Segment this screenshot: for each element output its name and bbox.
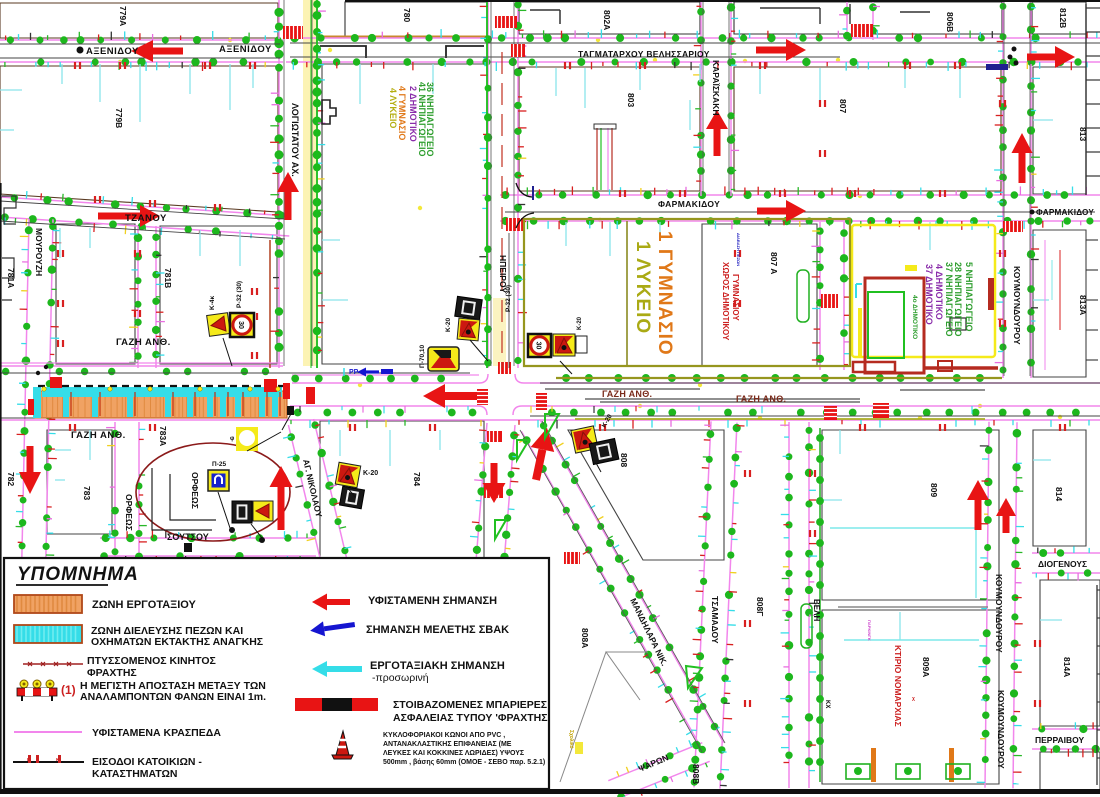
svg-text:5 ΝΗΠΙΑΓΩΓΕΙΟ: 5 ΝΗΠΙΑΓΩΓΕΙΟ [964,262,974,332]
svg-text:2 ΔΗΜΟΤΙΚΟ: 2 ΔΗΜΟΤΙΚΟ [408,86,418,142]
svg-text:ΚΤΙΡΙΟ ΝΟΜΑΡΧΙΑΣ: ΚΤΙΡΙΟ ΝΟΜΑΡΧΙΑΣ [893,645,903,727]
svg-text:ΒΕΛΗ: ΒΕΛΗ [812,599,821,621]
svg-text:ΤΖΑΝΟΥ: ΤΖΑΝΟΥ [125,213,167,224]
svg-text:ΥΦΙΣΤΑΜΕΝΗ ΣΗΜΑΝΣΗ: ΥΦΙΣΤΑΜΕΝΗ ΣΗΜΑΝΣΗ [368,595,497,607]
svg-text:812Β: 812Β [1058,8,1068,28]
svg-text:ΕΡΓΟΤΑΞΙΑΚΗ ΣΗΜΑΝΣΗ: ΕΡΓΟΤΑΞΙΑΚΗ ΣΗΜΑΝΣΗ [370,660,505,672]
svg-text:ΓΑΖΗ ΑΝΘ.: ΓΑΖΗ ΑΝΘ. [602,389,652,399]
svg-text:814: 814 [1054,487,1064,501]
svg-text:30: 30 [535,342,542,350]
svg-text:ΠΤΥΣΣΟΜΕΝΟΣ ΚΙΝΗΤΟΣ: ΠΤΥΣΣΟΜΕΝΟΣ ΚΙΝΗΤΟΣ [87,655,216,667]
svg-text:ΦΑΡΜΑΚΙΔΟΥ: ΦΑΡΜΑΚΙΔΟΥ [658,199,720,209]
svg-text:-προσωρινή: -προσωρινή [372,672,429,684]
svg-text:808Β: 808Β [691,764,701,784]
svg-text:783Α: 783Α [158,426,168,446]
svg-text:ΕΙΣΟΔΟΙ ΚΑΤΟΙΚΙΩΝ -: ΕΙΣΟΔΟΙ ΚΑΤΟΙΚΙΩΝ - [92,756,202,768]
svg-text:ΓΥΜΝΑΣΙΟΥ: ΓΥΜΝΑΣΙΟΥ [731,274,740,321]
svg-text:ΚΧ: ΚΧ [824,700,830,708]
svg-text:ΓΑΖΗ ΑΝΘ.: ΓΑΖΗ ΑΝΘ. [71,430,126,441]
svg-text:808Α: 808Α [580,628,590,648]
svg-text:χ: χ [912,696,915,702]
svg-text:ΚΥΚΛΟΦΟΡΙΑΚΟΙ ΚΩΝΟΙ ΑΠΟ PVC ,: ΚΥΚΛΟΦΟΡΙΑΚΟΙ ΚΩΝΟΙ ΑΠΟ PVC , [383,732,505,739]
svg-text:781Β: 781Β [163,268,173,288]
svg-text:ΥΦΙΣΤΑΜΕΝΑ ΚΡΑΣΠΕΔΑ: ΥΦΙΣΤΑΜΕΝΑ ΚΡΑΣΠΕΔΑ [92,727,221,739]
svg-text:ΟΧΗΜΑΤΩΝ ΕΚΤΑΚΤΗΣ ΑΝΑΓΚΗΣ: ΟΧΗΜΑΤΩΝ ΕΚΤΑΚΤΗΣ ΑΝΑΓΚΗΣ [91,636,263,648]
svg-text:806Β: 806Β [945,12,955,32]
svg-text:ΦΑΡΜΑΚΙΔΟΥ: ΦΑΡΜΑΚΙΔΟΥ [1036,208,1094,217]
svg-text:Π-25: Π-25 [212,461,226,468]
svg-text:779Α: 779Α [118,6,128,26]
svg-text:ΥΠΟΜΝΗΜΑ: ΥΠΟΜΝΗΜΑ [17,564,139,585]
svg-text:ΚΑΡΑΪΣΚΑΚΗ: ΚΑΡΑΪΣΚΑΚΗ [711,60,721,115]
svg-text:814Α: 814Α [1062,657,1072,677]
svg-text:Σχολικό: Σχολικό [568,730,574,749]
svg-text:30: 30 [237,321,244,329]
svg-text:ΟΡΦΕΩΣ: ΟΡΦΕΩΣ [190,472,200,509]
svg-text:Π-70,10: Π-70,10 [419,344,426,368]
svg-text:ΚΟΥΜΟΥΝΔΟΥΡΟΥ: ΚΟΥΜΟΥΝΔΟΥΡΟΥ [1012,266,1022,345]
svg-text:φ: φ [230,436,235,442]
svg-text:813: 813 [1078,127,1088,141]
svg-text:ΑΝΑΛΑΜΠΟΝΤΩΝ ΦΑΝΩΝ ΕΙΝΑΙ 1m.: ΑΝΑΛΑΜΠΟΝΤΩΝ ΦΑΝΩΝ ΕΙΝΑΙ 1m. [80,691,266,703]
svg-text:37 ΔΗΜΟΤΙΚΟ: 37 ΔΗΜΟΤΙΚΟ [924,264,934,325]
svg-text:37 ΝΗΠΙΑΓΩΓΕΙΟ: 37 ΝΗΠΙΑΓΩΓΕΙΟ [944,262,954,337]
svg-text:Ρ-32 (30): Ρ-32 (30) [236,281,243,308]
svg-text:781Α: 781Α [6,268,16,288]
svg-text:ΑΞΕΝΙΔΟΥ: ΑΞΕΝΙΔΟΥ [86,46,139,57]
svg-text:803: 803 [626,93,636,107]
svg-text:809: 809 [929,483,939,497]
svg-text:ΔΙΟΓΕΝΟΥΣ: ΔΙΟΓΕΝΟΥΣ [1038,559,1087,569]
svg-text:807 Α: 807 Α [769,252,779,274]
svg-text:ΔΙΑΒΑΣΗ ΠΕΖΩΝ: ΔΙΑΒΑΣΗ ΠΕΖΩΝ [736,233,741,266]
svg-text:Κ-20: Κ-20 [445,318,452,332]
svg-text:ΠΑΡΚΙΝΓΚ: ΠΑΡΚΙΝΓΚ [867,620,872,641]
svg-text:ΚΟΥΜΟΥΝΔΟΥΡΟΥ: ΚΟΥΜΟΥΝΔΟΥΡΟΥ [996,690,1006,769]
svg-text:ΠΕΡΡΑΙΒΟΥ: ΠΕΡΡΑΙΒΟΥ [1035,735,1085,745]
svg-text:4ο ΔΗΜΟΤΙΚΟ: 4ο ΔΗΜΟΤΙΚΟ [911,295,918,339]
svg-text:Κ-4κ: Κ-4κ [209,296,216,310]
svg-text:ΛΟΓΙΩΤΑΤΟΥ ΑΧ.: ΛΟΓΙΩΤΑΤΟΥ ΑΧ. [290,103,300,177]
svg-text:ΖΩΝΗ ΕΡΓΟΤΑΞΙΟΥ: ΖΩΝΗ ΕΡΓΟΤΑΞΙΟΥ [92,599,197,611]
svg-text:ΗΠΕΙΡΟΥ: ΗΠΕΙΡΟΥ [498,255,508,293]
svg-text:1 ΛΥΚΕΙΟ: 1 ΛΥΚΕΙΟ [632,241,653,334]
svg-text:4 ΛΥΚΕΙΟ: 4 ΛΥΚΕΙΟ [388,88,398,128]
svg-text:ΣΗΜΑΝΣΗ ΜΕΛΕΤΗΣ ΣΒΑΚ: ΣΗΜΑΝΣΗ ΜΕΛΕΤΗΣ ΣΒΑΚ [366,624,509,636]
svg-text:ΣΤΟΙΒΑΖΟΜΕΝΕΣ ΜΠΑΡΙΕΡΕΣ: ΣΤΟΙΒΑΖΟΜΕΝΕΣ ΜΠΑΡΙΕΡΕΣ [393,699,547,711]
svg-text:ΟΡΦΕΩΣ: ΟΡΦΕΩΣ [124,494,134,531]
svg-text:500mm , βάσης 60mm (ΟΜΟΕ - ΣΕΒ: 500mm , βάσης 60mm (ΟΜΟΕ - ΣΕΒΟ παρ. 5.2… [383,759,545,766]
svg-text:ΑΞΕΝΙΔΟΥ: ΑΞΕΝΙΔΟΥ [219,44,272,55]
svg-text:ΛΕΥΚΕΣ ΚΑΙ ΚΟΚΚΙΝΕΣ ΛΩΡΙΔΕΣ) Υ: ΛΕΥΚΕΣ ΚΑΙ ΚΟΚΚΙΝΕΣ ΛΩΡΙΔΕΣ) ΥΨΟΥΣ [383,750,524,757]
svg-text:ΜΟΥΡΟΥΖΗ: ΜΟΥΡΟΥΖΗ [34,228,44,276]
svg-text:ΦΡΑΧΤΗΣ: ΦΡΑΧΤΗΣ [87,667,137,679]
svg-text:ΑΣΦΑΛΕΙΑΣ ΤΥΠΟΥ 'ΦΡΑΧΤΗΣ': ΑΣΦΑΛΕΙΑΣ ΤΥΠΟΥ 'ΦΡΑΧΤΗΣ' [393,712,550,724]
svg-text:κ: κ [56,757,59,763]
svg-text:813Α: 813Α [1078,295,1088,315]
svg-text:808Γ: 808Γ [755,597,765,616]
svg-text:809Α: 809Α [921,657,931,677]
svg-text:780: 780 [402,8,412,22]
svg-text:808: 808 [619,453,629,467]
svg-text:ΧΩΡΟΣ ΔΗΜΟΤΙΚΟΥ: ΧΩΡΟΣ ΔΗΜΟΤΙΚΟΥ [721,262,730,341]
svg-text:ΡΡ: ΡΡ [349,369,359,376]
svg-text:784: 784 [412,472,422,486]
svg-text:ΚΑΤΑΣΤΗΜΑΤΩΝ: ΚΑΤΑΣΤΗΜΑΤΩΝ [92,768,178,780]
svg-text:ΓΑΖΗ ΑΝΘ.: ΓΑΖΗ ΑΝΘ. [736,394,786,404]
svg-text:807: 807 [838,99,848,113]
svg-text:4 ΔΗΜΟΤΙΚΟ: 4 ΔΗΜΟΤΙΚΟ [934,264,944,320]
svg-text:ΓΑΖΗ ΑΝΘ.: ΓΑΖΗ ΑΝΘ. [116,337,171,348]
svg-text:ΚΟΥΜΟΥΝΔΟΥΡΟΥ: ΚΟΥΜΟΥΝΔΟΥΡΟΥ [994,574,1004,653]
svg-text:782: 782 [6,472,16,486]
svg-text:ΣΟΥΤΣΟΥ: ΣΟΥΤΣΟΥ [167,532,209,542]
svg-text:802Α: 802Α [602,10,612,30]
svg-text:783: 783 [82,486,92,500]
svg-text:ΤΑΓΜΑΤΑΡΧΟΥ ΒΕΛΗΣΣΑΡΙΟΥ: ΤΑΓΜΑΤΑΡΧΟΥ ΒΕΛΗΣΣΑΡΙΟΥ [578,49,710,59]
svg-text:ΤΣΑΜΑΔΟΥ: ΤΣΑΜΑΔΟΥ [710,596,720,644]
svg-text:Κ-20: Κ-20 [577,316,583,330]
svg-text:(1): (1) [61,683,76,697]
svg-text:κ: κ [27,757,30,763]
svg-text:Κ-20: Κ-20 [363,470,378,477]
svg-text:779Β: 779Β [114,108,124,128]
svg-text:1 ΓΥΜΝΑΣΙΟ: 1 ΓΥΜΝΑΣΙΟ [654,231,675,356]
svg-text:ΑΝΤΑΝΑΚΛΑΣΤΙΚΗΣ ΕΠΙΦΑΝΕΙΑΣ (ΜΕ: ΑΝΤΑΝΑΚΛΑΣΤΙΚΗΣ ΕΠΙΦΑΝΕΙΑΣ (ΜΕ [383,741,512,748]
